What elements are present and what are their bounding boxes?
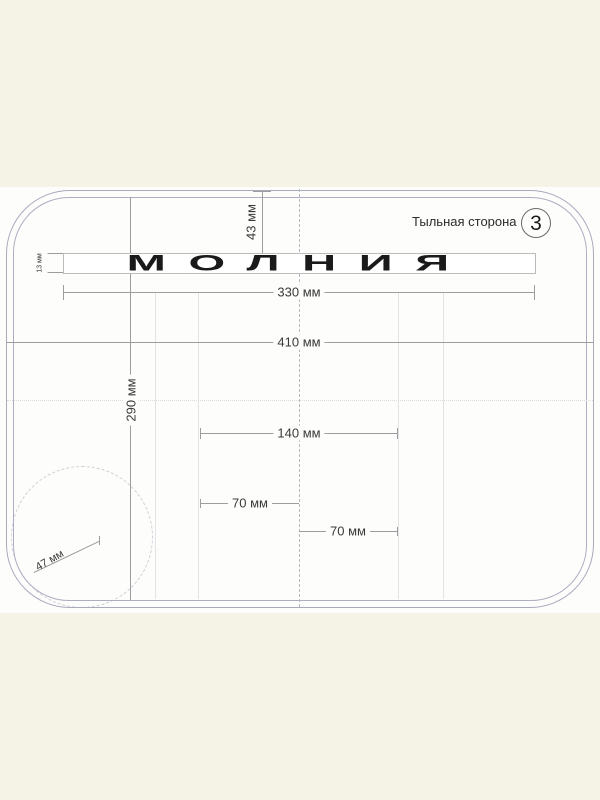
- dim-330-label: 330 мм: [273, 285, 324, 300]
- dim-13-ext-bottom: [45, 272, 63, 273]
- dim-290-label: 290 мм: [124, 374, 139, 425]
- side-label: Тыльная сторона: [412, 214, 517, 229]
- horizontal-center-line: [7, 400, 593, 401]
- zipper-band: МОЛНИЯ: [63, 253, 536, 274]
- dim-13-ext-top: [45, 253, 63, 254]
- dim-70-right-tick: [397, 527, 398, 536]
- dim-47-tick: [99, 536, 100, 545]
- dim-43-line: [262, 191, 263, 253]
- zipper-text: МОЛНИЯ: [127, 254, 472, 272]
- dim-140-tick-left: [200, 428, 201, 439]
- sheet-number: 3: [530, 213, 542, 234]
- dim-140-label: 140 мм: [273, 426, 324, 441]
- dim-140-tick-right: [397, 428, 398, 439]
- dim-43-tick: [253, 191, 271, 192]
- dim-13-label: 13 мм: [33, 252, 48, 273]
- dim-70-left-label: 70 мм: [228, 496, 272, 511]
- dim-410-label: 410 мм: [273, 335, 324, 350]
- sheet-number-badge: 3: [521, 208, 551, 238]
- dim-330-tick-left: [63, 285, 64, 300]
- dim-70-right-label: 70 мм: [326, 524, 370, 539]
- dim-43-label: 43 мм: [244, 200, 259, 244]
- dim-70-left-tick: [200, 499, 201, 508]
- dim-330-tick-right: [534, 285, 535, 300]
- canvas: { "header": { "side_label": "Тыльная сто…: [0, 0, 600, 800]
